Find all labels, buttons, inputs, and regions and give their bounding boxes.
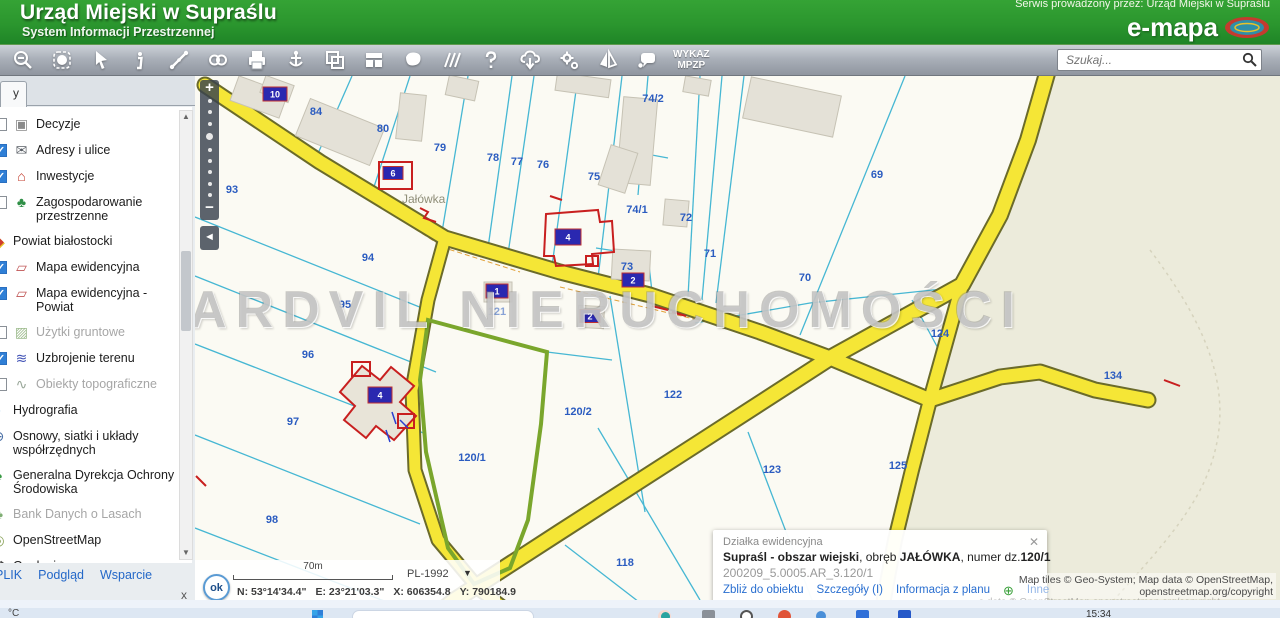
zoom-level-dot[interactable] — [208, 182, 212, 186]
header: Urząd Miejski w Supraślu System Informac… — [0, 0, 1280, 44]
zoom-dots — [200, 96, 219, 200]
taskbar-search[interactable] — [352, 610, 534, 618]
parcel-label: 134 — [1104, 370, 1123, 382]
parcel-label: 98 — [266, 514, 278, 526]
layer-row[interactable]: ▣ Decyzje — [0, 111, 192, 137]
layer-row[interactable]: ♣ Zagospodarowanie przestrzenne — [0, 189, 192, 228]
layer-icon: ⊕ — [0, 428, 7, 444]
attribution-line1: Map tiles © Geo-System; Map data © OpenS… — [1019, 574, 1273, 586]
close-icon[interactable]: ✕ — [1029, 535, 1039, 549]
measure-icon[interactable] — [166, 47, 192, 73]
parcel-label: 74/1 — [626, 204, 647, 216]
layer-checkbox[interactable] — [0, 118, 7, 131]
search-icon[interactable] — [1242, 52, 1257, 67]
coordinates-readout: N: 53°14'34.4" E: 23°21'03.3" X: 606354.… — [237, 586, 516, 598]
service-note: Serwis prowadzony przez: Urząd Miejski w… — [1015, 0, 1270, 10]
svg-text:2: 2 — [587, 312, 592, 322]
crs-selector[interactable]: PL-1992 — [407, 568, 449, 580]
layer-label: Inwestycje — [36, 168, 94, 183]
layer-label: Mapa ewidencyjna — [36, 259, 140, 274]
layer-checkbox[interactable] — [0, 170, 7, 183]
layer-icon: ◆ — [0, 233, 7, 249]
layer-icon: ⌂ — [13, 168, 30, 184]
layer-list: ▣ Decyzje ✉ Adresy i ulice ⌂ Inwestycje — [0, 107, 192, 563]
address-marker[interactable]: 6 — [383, 167, 403, 180]
taskbar-app-icon[interactable] — [898, 610, 911, 618]
plus-circle-icon[interactable]: ⊕ — [1003, 584, 1014, 597]
geosystem-logo-icon — [1224, 16, 1270, 39]
sidebar-footer-links: PLIKPodglądWsparcie — [0, 568, 190, 582]
layout-icon[interactable] — [361, 47, 387, 73]
layer-row[interactable]: ▱ Mapa ewidencyjna - Powiat — [0, 280, 192, 319]
layer-row[interactable]: ∿ Obiekty topograficzne — [0, 371, 192, 397]
layer-icon: ♠ — [0, 467, 7, 483]
compare-icon[interactable] — [595, 47, 621, 73]
app-window: Urząd Miejski w Supraślu System Informac… — [0, 0, 1280, 618]
layer-checkbox[interactable] — [0, 196, 7, 209]
address-marker[interactable]: 2 — [622, 273, 644, 287]
select-area-icon[interactable] — [49, 47, 75, 73]
toolbar: WYKAZ MPZP — [0, 44, 1280, 76]
wykaz-line1: WYKAZ — [673, 49, 710, 60]
parcel-label: 124 — [931, 328, 950, 340]
layer-label: Obiekty topograficzne — [36, 376, 157, 391]
zoom-level-dot[interactable] — [208, 193, 212, 197]
parcel-label: 84 — [310, 106, 323, 118]
layer-row[interactable]: ≋ Uzbrojenie terenu — [0, 345, 192, 371]
footer-link[interactable]: Podgląd — [38, 568, 84, 582]
parcel-label: 73 — [621, 261, 633, 273]
layer-label: Zagospodarowanie przestrzenne — [36, 194, 178, 223]
layer-row[interactable]: ⊕ Osnowy, siatki i układy współrzędnych — [0, 423, 192, 462]
link-details[interactable]: Szczegóły (I) — [817, 584, 883, 597]
layer-label: Powiat białostocki — [13, 233, 112, 248]
layer-row[interactable]: ⚒ Geologia — [0, 553, 192, 563]
layer-label: Mapa ewidencyjna - Powiat — [36, 285, 178, 314]
coord-y: Y: 790184.9 — [460, 586, 516, 598]
zoom-level-dot[interactable] — [208, 122, 212, 126]
parcel-label: 71 — [704, 248, 716, 260]
footer-link[interactable]: PLIK — [0, 568, 22, 582]
search-box — [1057, 49, 1262, 71]
parcel-label: 123 — [763, 464, 781, 476]
layer-icon: ⚒ — [0, 558, 7, 563]
svg-text:6: 6 — [390, 169, 395, 179]
layer-label: Bank Danych o Lasach — [13, 506, 142, 521]
layer-label: Geologia — [13, 558, 63, 563]
zoom-level-dot[interactable] — [208, 159, 212, 163]
print-icon[interactable] — [244, 47, 270, 73]
layer-row[interactable]: ▨ Użytki gruntowe — [0, 319, 192, 345]
layer-icon: ♣ — [0, 506, 7, 522]
layer-label: Użytki gruntowe — [36, 324, 125, 339]
sidebar-tabrow: y — [0, 76, 195, 106]
parcel-label: 75 — [588, 171, 600, 183]
popup-parcel-number: 120/1 — [1020, 550, 1050, 564]
parcel-label: 78 — [487, 152, 499, 164]
parcel-label: 97 — [287, 416, 299, 428]
map-canvas[interactable]: Jałówka 9394959697988480797877767574/274… — [195, 76, 1280, 608]
locate-icon[interactable] — [283, 47, 309, 73]
layer-label: Generalna Dyrekcja Ochrony Środowiska — [13, 467, 178, 496]
parcel-label: 79 — [434, 142, 446, 154]
parcel-label: 125 — [889, 460, 907, 472]
svg-text:4: 4 — [565, 233, 570, 243]
map-viewport[interactable]: Jałówka 9394959697988480797877767574/274… — [195, 76, 1280, 608]
page-subtitle: System Informacji Przestrzennej — [22, 25, 214, 39]
layer-icon: ✉ — [13, 142, 30, 158]
parcel-label: 96 — [302, 349, 314, 361]
popup-parcel-line: Supraśl - obszar wiejski, obręb JAŁÓWKA,… — [723, 550, 1037, 564]
taskbar-app-icon[interactable] — [702, 610, 715, 618]
tab-layers[interactable]: y — [0, 81, 27, 107]
parcel-label: 94 — [362, 252, 375, 264]
taskbar-app-icon[interactable] — [816, 611, 826, 618]
parcel-label: 120/1 — [458, 452, 486, 464]
taskbar-app-icon[interactable] — [661, 612, 670, 618]
ok-button[interactable]: ok — [203, 574, 230, 601]
coord-x: X: 606354.8 — [393, 586, 450, 598]
map-attribution: Map tiles © Geo-System; Map data © OpenS… — [1016, 573, 1276, 599]
layer-icon: ◎ — [0, 532, 7, 548]
layer-checkbox[interactable] — [0, 287, 7, 300]
parcel-label: 69 — [871, 169, 883, 181]
emapa-brand: e-mapa — [1127, 12, 1218, 43]
coord-e: E: 23°21'03.3" — [315, 586, 384, 598]
svg-text:1: 1 — [494, 287, 499, 297]
layer-icon: ≋ — [13, 350, 30, 366]
zoom-level-dot[interactable] — [208, 170, 212, 174]
area-shape-icon[interactable] — [400, 47, 426, 73]
info-icon[interactable] — [127, 47, 153, 73]
zoom-level-dot[interactable] — [208, 110, 212, 114]
zoom-out-icon[interactable] — [10, 47, 36, 73]
layer-row[interactable]: ♣ Bank Danych o Lasach — [0, 501, 192, 527]
coord-n: N: 53°14'34.4" — [237, 586, 306, 598]
layer-row[interactable]: ⌂ Inwestycje — [0, 163, 192, 189]
address-marker[interactable]: 2 — [580, 310, 600, 323]
link-plan-info[interactable]: Informacja z planu — [896, 584, 990, 597]
parcel-label: 76 — [537, 159, 549, 171]
layer-label: OpenStreetMap — [13, 532, 101, 547]
page-bottom-strip — [0, 600, 1280, 608]
layer-icon: ♣ — [13, 194, 30, 210]
parcel-label: 77 — [511, 156, 523, 168]
zoom-slider: + − — [200, 80, 219, 220]
layer-icon: ∿ — [13, 376, 30, 392]
parcel-label: 121 — [488, 306, 506, 318]
layer-scrollbar[interactable]: ▲ ▼ — [179, 110, 193, 560]
address-marker[interactable]: 4 — [555, 229, 581, 245]
help-icon[interactable] — [478, 47, 504, 73]
address-marker[interactable]: 1 — [486, 284, 508, 298]
layer-checkbox[interactable] — [0, 352, 7, 365]
scale-bar-line — [233, 575, 393, 580]
cloud-download-icon[interactable] — [517, 47, 543, 73]
parcel-label: 93 — [226, 184, 238, 196]
footer-link[interactable]: Wsparcie — [100, 568, 152, 582]
scroll-thumb[interactable] — [181, 251, 191, 331]
layer-icon: ◗ — [0, 402, 7, 418]
layer-row[interactable]: ▱ Mapa ewidencyjna — [0, 254, 192, 280]
feedback-icon[interactable] — [634, 47, 660, 73]
layer-row[interactable]: ♠ Generalna Dyrekcja Ochrony Środowiska — [0, 462, 192, 501]
layer-icon: ▱ — [13, 285, 30, 301]
popup-obreb: JAŁÓWKA — [900, 550, 961, 564]
popup-title: Działka ewidencyjna — [723, 536, 1037, 548]
locality-label: Jałówka — [402, 192, 446, 206]
layer-checkbox[interactable] — [0, 378, 7, 391]
popup-sep2: , numer dz. — [960, 550, 1020, 564]
collapse-panel-button[interactable]: ◄ — [200, 226, 219, 250]
address-marker[interactable]: 10 — [263, 87, 287, 101]
popup-sep1: , obręb — [859, 550, 900, 564]
chevron-down-icon[interactable]: ▼ — [463, 568, 472, 578]
link-zoom-to-object[interactable]: Zbliż do obiektu — [723, 584, 804, 597]
layer-row[interactable]: ◆ Powiat białostocki — [0, 228, 192, 254]
guides-icon[interactable] — [439, 47, 465, 73]
scroll-down-icon[interactable]: ▼ — [180, 547, 192, 559]
cursor-icon[interactable] — [88, 47, 114, 73]
address-marker[interactable]: 4 — [368, 387, 392, 403]
parcel-label: 122 — [664, 389, 682, 401]
popup-municipality: Supraśl - obszar wiejski — [723, 550, 859, 564]
wykaz-line2: MPZP — [673, 60, 710, 71]
zoom-in-button[interactable]: + — [200, 80, 219, 96]
layer-icon: ▨ — [13, 324, 30, 340]
parcel-label: 118 — [616, 557, 634, 569]
svg-text:4: 4 — [377, 391, 382, 401]
taskbar-app-icon[interactable] — [740, 610, 753, 618]
zoom-level-dot-current[interactable] — [206, 133, 213, 140]
layer-label: Decyzje — [36, 116, 80, 131]
copy-frames-icon[interactable] — [322, 47, 348, 73]
windows-taskbar: °C 15:34 — [0, 608, 1280, 618]
search-input[interactable] — [1057, 49, 1262, 71]
layer-icon: ▣ — [13, 116, 30, 132]
settings-icon[interactable] — [556, 47, 582, 73]
parcel-label: 74/2 — [642, 93, 663, 105]
layer-label: Osnowy, siatki i układy współrzędnych — [13, 428, 178, 457]
layer-label: Adresy i ulice — [36, 142, 110, 157]
parcel-label: 120/2 — [564, 406, 592, 418]
zoom-level-dot[interactable] — [208, 148, 212, 152]
layer-row[interactable]: ◗ Hydrografia — [0, 397, 192, 423]
windows-start-icon[interactable] — [312, 610, 323, 618]
scroll-up-icon[interactable]: ▲ — [180, 111, 192, 123]
taskbar-app-icon[interactable] — [856, 610, 869, 618]
parcel-label: 95 — [339, 299, 351, 311]
layer-checkbox[interactable] — [0, 144, 7, 157]
wykaz-mpzp-button[interactable]: WYKAZ MPZP — [673, 49, 710, 71]
layer-label: Hydrografia — [13, 402, 78, 417]
taskbar-clock[interactable]: 15:34 — [1086, 609, 1111, 618]
popup-links: Zbliż do obiektu Szczegóły (I) Informacj… — [723, 584, 1037, 597]
parcel-label: 80 — [377, 123, 389, 135]
scale-bar: 70m — [233, 564, 393, 580]
zoom-level-dot[interactable] — [208, 99, 212, 103]
page-title: Urząd Miejski w Supraślu — [20, 1, 277, 25]
layer-checkbox[interactable] — [0, 261, 7, 274]
layer-row[interactable]: ✉ Adresy i ulice — [0, 137, 192, 163]
zoom-out-button[interactable]: − — [200, 200, 219, 216]
scale-label: 70m — [233, 561, 393, 572]
popup-parcel-id: 200209_5.0005.AR_3.120/1 — [723, 566, 1037, 580]
layer-label: Uzbrojenie terenu — [36, 350, 135, 365]
parcel-label: 72 — [680, 212, 692, 224]
layer-icon: ▱ — [13, 259, 30, 275]
parcel-label: 70 — [799, 272, 811, 284]
taskbar-app-icon[interactable] — [778, 610, 791, 618]
svg-text:10: 10 — [270, 90, 280, 100]
layer-row[interactable]: ◎ OpenStreetMap — [0, 527, 192, 553]
svg-text:2: 2 — [630, 276, 635, 286]
link-icon[interactable] — [205, 47, 231, 73]
layers-sidebar: y ▣ Decyzje ✉ Adresy i ulice ⌂ — [0, 76, 195, 608]
weather-widget[interactable]: °C — [8, 608, 19, 618]
layer-checkbox[interactable] — [0, 326, 7, 339]
